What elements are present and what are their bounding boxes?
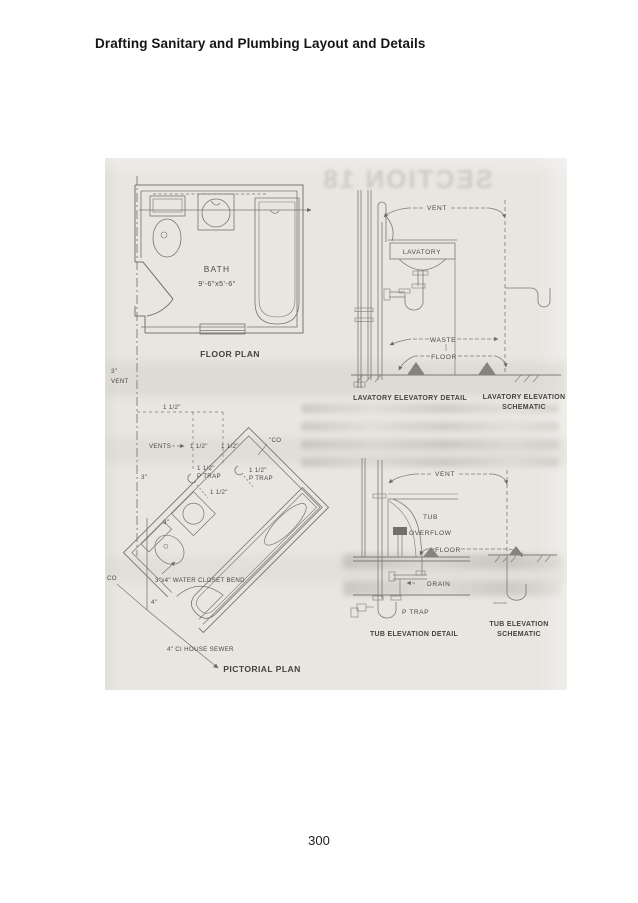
lavatory-detail-caption: LAVATORY ELEVATORY DETAIL [353, 395, 467, 402]
lavatory-waste-label: WASTE [430, 337, 456, 344]
pictorial-dim: 1 1/2" [210, 489, 228, 496]
ground-hatch [478, 362, 496, 375]
tub-label: TUB [423, 514, 438, 521]
scanned-figure: SECTION 18 [105, 158, 567, 690]
pictorial-plan-caption: PICTORIAL PLAN [223, 664, 300, 674]
pictorial-cleanout-left: CO [107, 575, 117, 582]
tub-overflow-label: OVERFLOW [409, 530, 452, 537]
pictorial-ptrap-size: 1 1/2" [249, 467, 267, 474]
page-title: Drafting Sanitary and Plumbing Layout an… [95, 36, 425, 51]
pictorial-dim: 1 1/2" [190, 443, 208, 450]
plumbing-drawing: BATH 9'-6"x5'-6" FLOOR PLAN [105, 158, 567, 690]
lavatory-schematic-caption-1: LAVATORY ELEVATION [483, 394, 566, 401]
lavatory-vent-label: VENT [427, 205, 447, 212]
pictorial-ptrap-label: P TRAP [197, 473, 221, 480]
floor-plan-linework [135, 185, 311, 334]
pictorial-branch-size: 3" [163, 519, 169, 526]
pictorial-dim: 1 1/2" [163, 404, 181, 411]
ground-hatch [407, 362, 425, 375]
pictorial-soil-pipe-size: 4" [151, 599, 157, 606]
pictorial-house-sewer-label: 4" CI HOUSE SEWER [167, 646, 234, 653]
tub-ptrap-label: P TRAP [402, 609, 429, 616]
pictorial-ptrap-size: 1 1/2" [197, 465, 215, 472]
pictorial-vents-label: VENTS [149, 443, 171, 450]
floor-plan-room-label: BATH [204, 264, 231, 274]
tub-overflow-fitting [393, 527, 407, 535]
lavatory-schematic-caption-2: SCHEMATIC [502, 404, 546, 411]
pictorial-dim: 1 1/2" [221, 443, 239, 450]
tub-drain-label: DRAIN [427, 581, 451, 588]
tub-schematic-caption-2: SCHEMATIC [497, 631, 541, 638]
pictorial-vent-label: VENT [111, 378, 129, 385]
floor-plan-room-dimensions: 9'-6"x5'-6" [198, 279, 236, 288]
pictorial-plan-linework [117, 412, 267, 668]
tub-floor-label: FLOOR [435, 547, 461, 554]
tub-detail-caption: TUB ELEVATION DETAIL [370, 631, 458, 638]
lavatory-floor-label: FLOOR [431, 354, 457, 361]
floor-plan-caption: FLOOR PLAN [200, 349, 260, 359]
tub-schematic-caption-1: TUB ELEVATION [489, 621, 548, 628]
pictorial-cleanout-top: "CO [269, 437, 281, 444]
page-number: 300 [0, 833, 638, 848]
tub-detail-linework [351, 458, 557, 618]
pictorial-stack-size-lower: 3" [141, 474, 147, 481]
ground-hatch [509, 546, 523, 555]
pictorial-ptrap-label: P TRAP [249, 475, 273, 482]
pictorial-wc-bend-label: 3"x4" WATER CLOSET BEND [155, 577, 245, 584]
lavatory-fixture-label: LAVATORY [403, 249, 441, 256]
pictorial-stack-size: 3" [111, 368, 117, 375]
tub-vent-label: VENT [435, 471, 455, 478]
